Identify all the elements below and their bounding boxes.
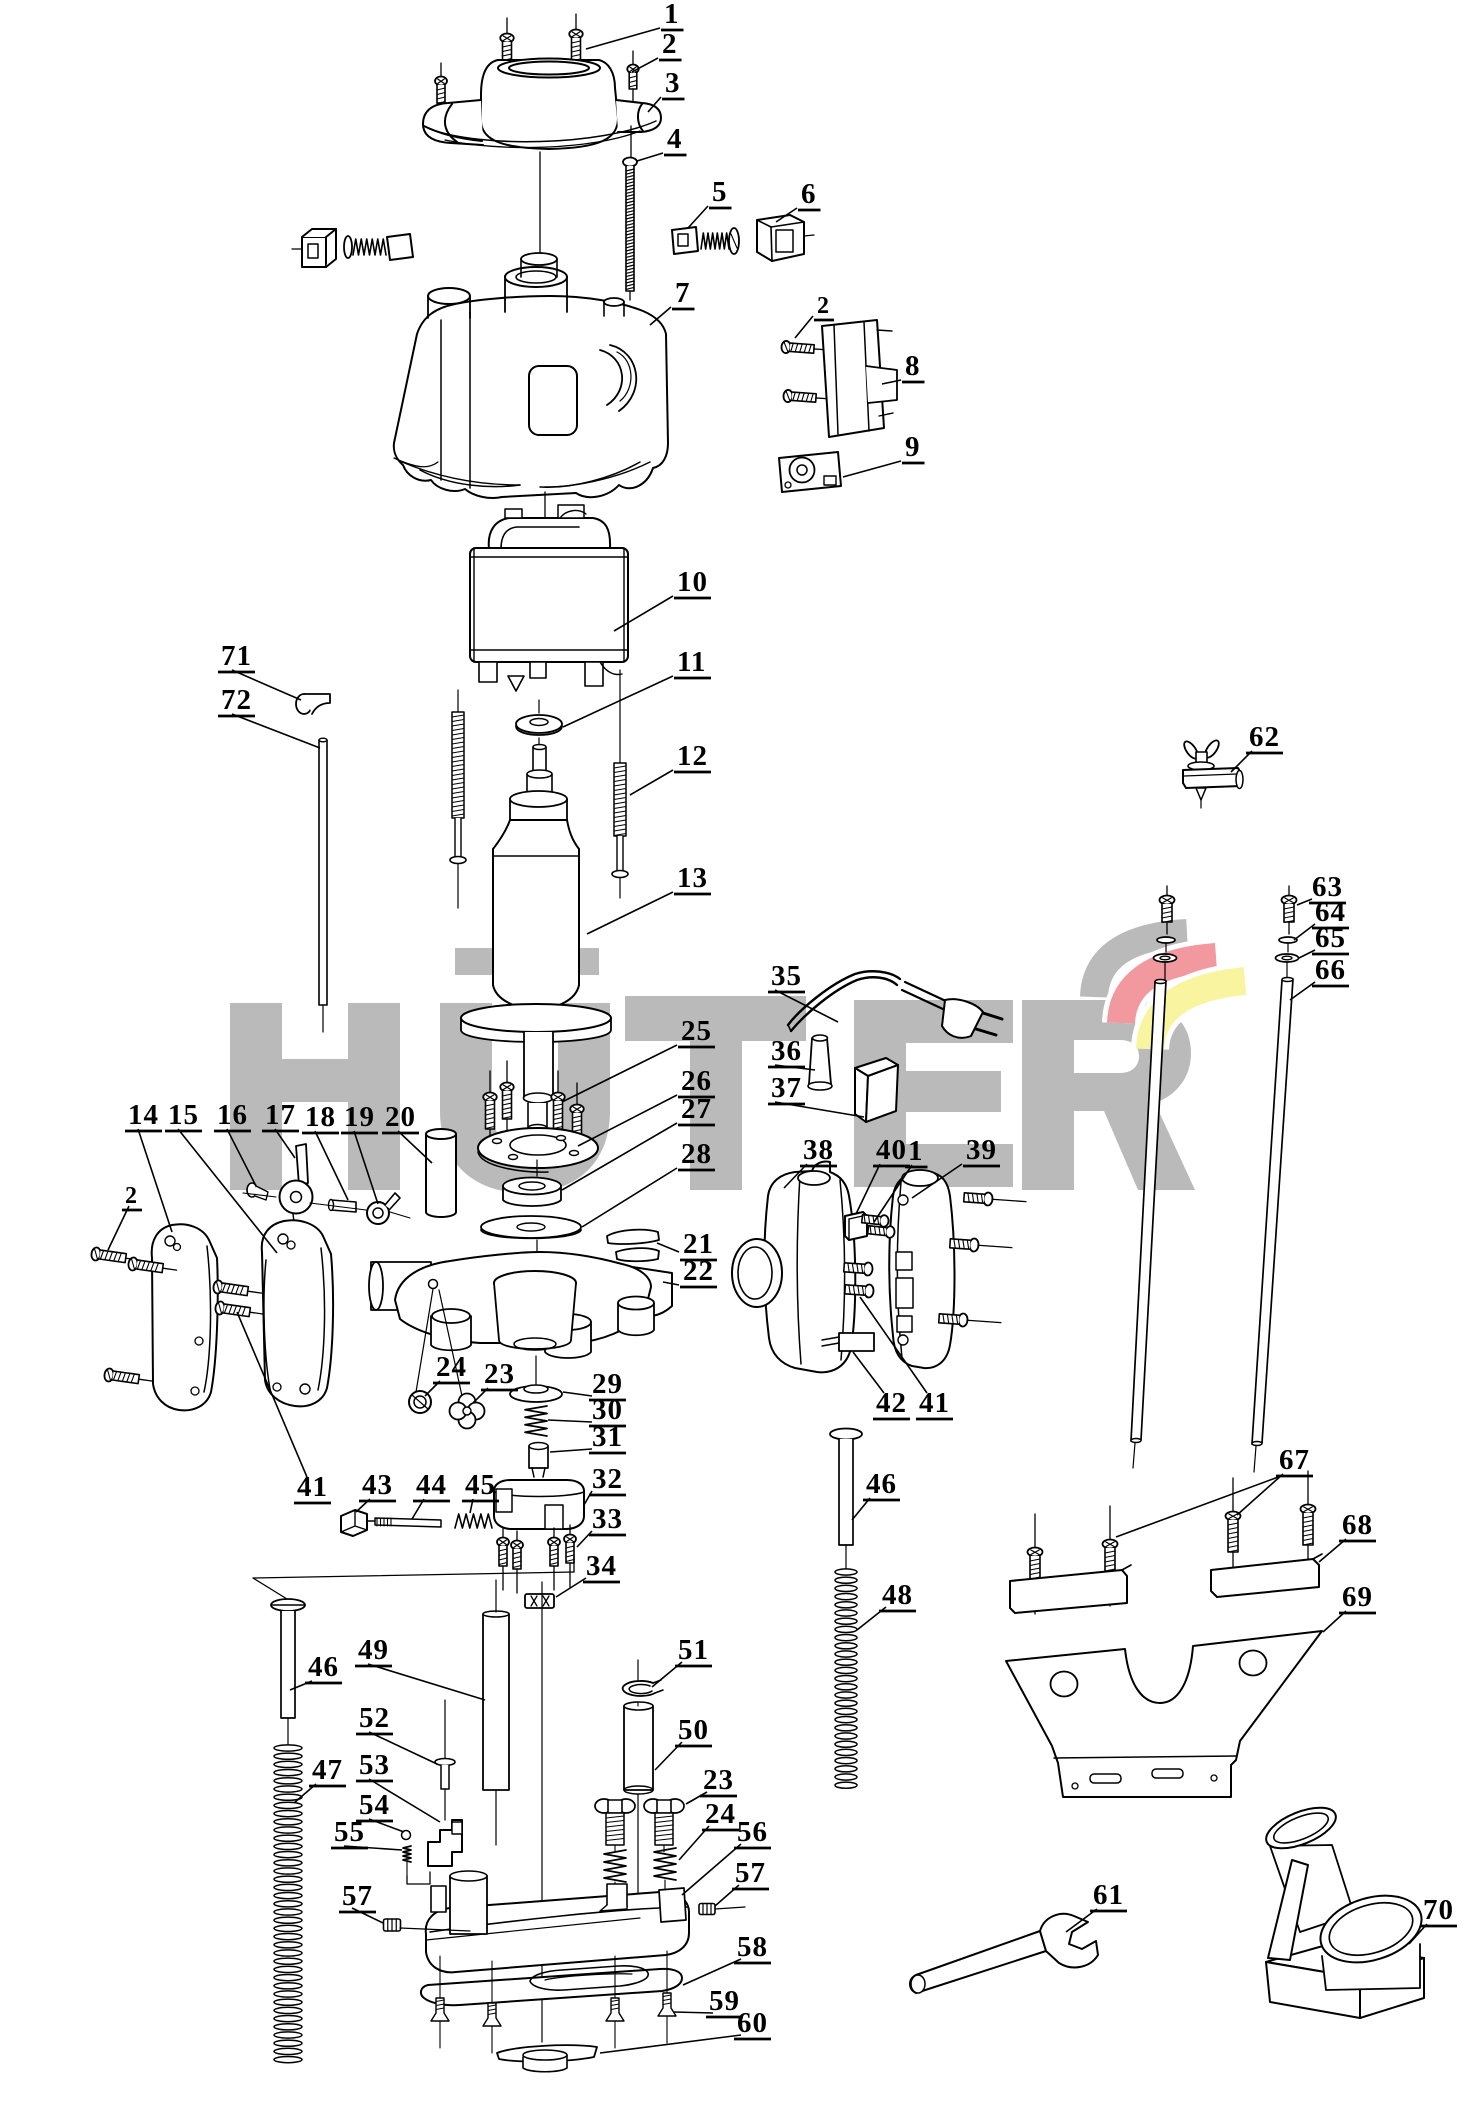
svg-text:39: 39: [966, 1134, 997, 1166]
svg-text:28: 28: [681, 1138, 712, 1170]
svg-text:46: 46: [866, 1468, 897, 1500]
svg-text:41: 41: [919, 1387, 950, 1419]
svg-text:32: 32: [592, 1463, 623, 1495]
svg-text:23: 23: [484, 1358, 515, 1390]
svg-text:7: 7: [675, 277, 691, 309]
svg-text:12: 12: [677, 740, 708, 772]
svg-text:13: 13: [677, 862, 708, 894]
svg-text:66: 66: [1315, 954, 1346, 986]
svg-text:58: 58: [737, 1931, 768, 1963]
svg-text:2: 2: [817, 293, 830, 319]
svg-text:22: 22: [683, 1255, 714, 1287]
svg-text:60: 60: [737, 2007, 768, 2039]
svg-text:52: 52: [359, 1702, 390, 1734]
svg-text:43: 43: [362, 1469, 393, 1501]
svg-text:25: 25: [681, 1015, 712, 1047]
svg-text:27: 27: [681, 1093, 712, 1125]
svg-text:44: 44: [416, 1469, 447, 1501]
svg-text:8: 8: [905, 350, 921, 382]
svg-text:38: 38: [803, 1134, 834, 1166]
svg-text:48: 48: [882, 1579, 913, 1611]
svg-text:69: 69: [1342, 1581, 1373, 1613]
svg-text:9: 9: [905, 431, 921, 463]
svg-text:18: 18: [305, 1101, 336, 1133]
svg-text:3: 3: [665, 67, 681, 99]
svg-text:40: 40: [876, 1134, 907, 1166]
svg-text:42: 42: [876, 1387, 907, 1419]
svg-text:56: 56: [737, 1816, 768, 1848]
svg-text:50: 50: [678, 1714, 709, 1746]
svg-text:47: 47: [312, 1754, 343, 1786]
svg-text:62: 62: [1249, 721, 1280, 753]
svg-text:37: 37: [771, 1072, 802, 1104]
svg-text:41: 41: [297, 1471, 328, 1503]
svg-text:71: 71: [221, 640, 252, 672]
svg-text:45: 45: [465, 1469, 496, 1501]
svg-text:70: 70: [1423, 1894, 1454, 1926]
svg-text:24: 24: [436, 1351, 467, 1383]
svg-text:1: 1: [908, 1135, 924, 1167]
svg-text:57: 57: [735, 1857, 766, 1889]
svg-text:23: 23: [703, 1764, 734, 1796]
svg-text:31: 31: [592, 1421, 623, 1453]
svg-text:34: 34: [586, 1550, 617, 1582]
svg-text:55: 55: [334, 1816, 365, 1848]
svg-text:5: 5: [712, 176, 728, 208]
svg-text:14: 14: [128, 1099, 159, 1131]
svg-text:35: 35: [771, 960, 802, 992]
svg-text:20: 20: [385, 1101, 416, 1133]
svg-text:15: 15: [168, 1099, 199, 1131]
svg-text:72: 72: [221, 684, 252, 716]
svg-text:2: 2: [662, 28, 678, 60]
svg-text:16: 16: [217, 1099, 248, 1131]
svg-text:1: 1: [664, 0, 680, 30]
svg-text:4: 4: [667, 123, 683, 155]
svg-text:65: 65: [1315, 922, 1346, 954]
svg-text:53: 53: [359, 1749, 390, 1781]
svg-text:46: 46: [308, 1651, 339, 1683]
svg-text:6: 6: [801, 178, 817, 210]
svg-text:36: 36: [771, 1035, 802, 1067]
svg-text:51: 51: [678, 1634, 709, 1666]
svg-text:17: 17: [265, 1099, 296, 1131]
svg-text:24: 24: [705, 1798, 736, 1830]
svg-text:59: 59: [709, 1985, 740, 2017]
svg-text:67: 67: [1279, 1444, 1310, 1476]
svg-text:19: 19: [344, 1101, 375, 1133]
svg-text:11: 11: [677, 646, 706, 678]
svg-text:2: 2: [125, 1183, 138, 1209]
svg-text:10: 10: [677, 566, 708, 598]
svg-text:57: 57: [342, 1880, 373, 1912]
svg-text:33: 33: [592, 1503, 623, 1535]
svg-text:49: 49: [358, 1634, 389, 1666]
svg-text:68: 68: [1342, 1509, 1373, 1541]
svg-text:61: 61: [1093, 1879, 1124, 1911]
